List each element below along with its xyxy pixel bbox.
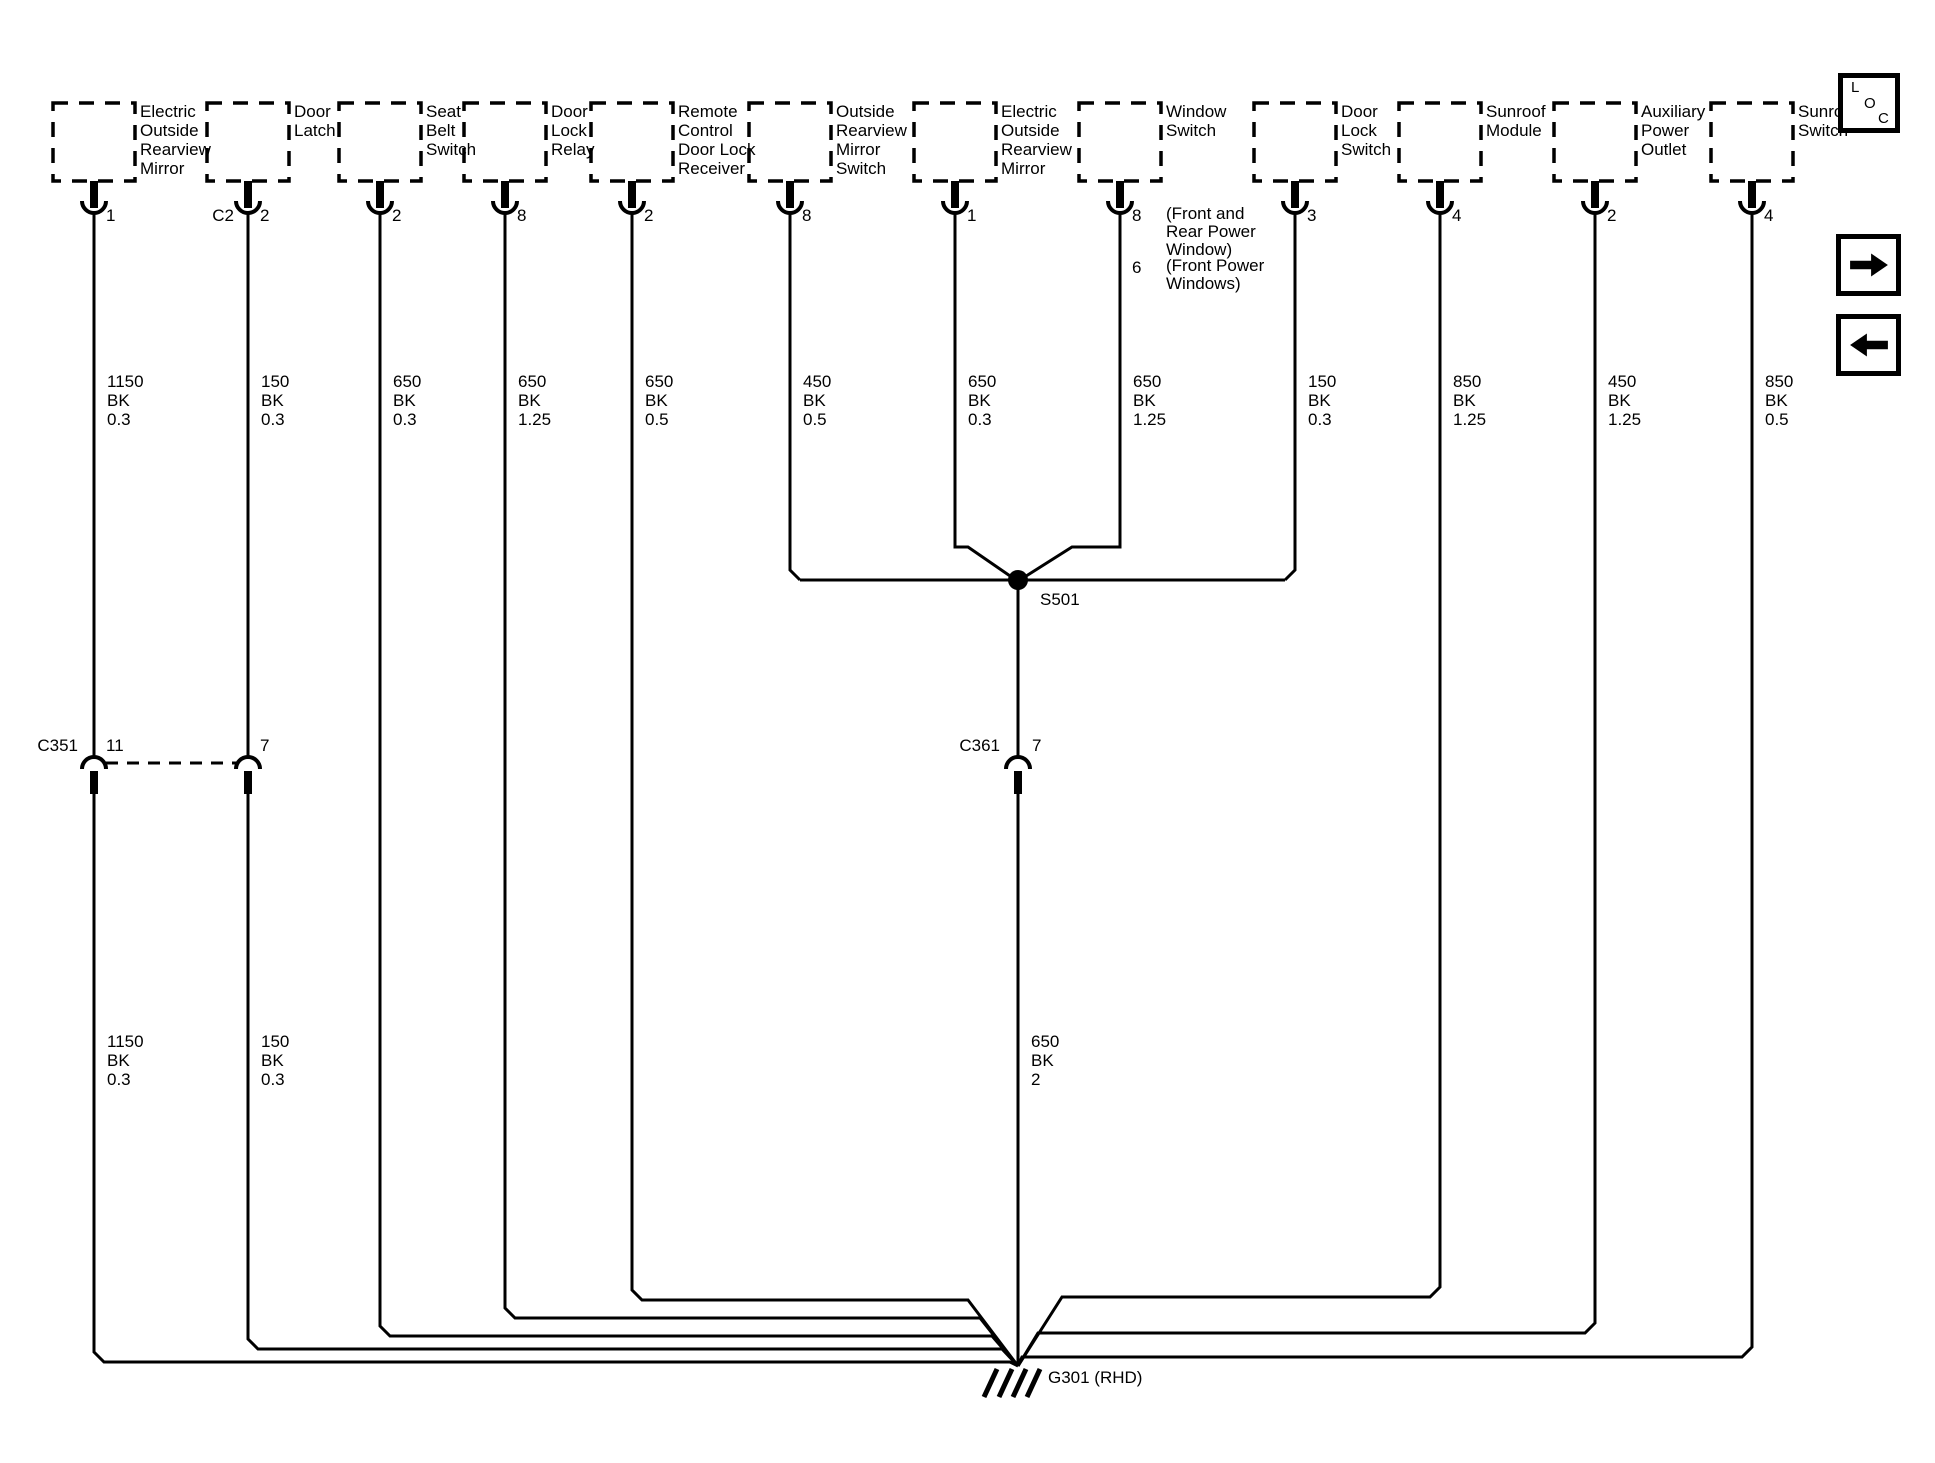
wire-spec-label: 1150 BK 0.3: [107, 372, 144, 429]
wire-spec-label-lower: 150 BK 0.3: [261, 1032, 289, 1089]
pin-number-label: 2: [392, 206, 401, 225]
connector-pin-label: 11: [106, 736, 124, 755]
loc-letter-o: O: [1864, 95, 1876, 112]
pin-number-label: 8: [802, 206, 811, 225]
loc-letter-c: C: [1878, 110, 1889, 127]
wires: [94, 213, 1752, 1366]
pin-number-label: 2: [1607, 206, 1616, 225]
connector-pin-ticks: [94, 181, 1752, 208]
pin-number-label: 8: [1132, 206, 1141, 225]
pin-number-label: 3: [1307, 206, 1316, 225]
loc-reference-button[interactable]: L O C: [1838, 73, 1900, 133]
right-arrow-icon: [1848, 249, 1890, 281]
wire-spec-label: 850 BK 1.25: [1453, 372, 1486, 429]
wire-spec-label: 150 BK 0.3: [261, 372, 289, 429]
splice-label-s501: S501: [1040, 590, 1080, 609]
splice-dot: [1008, 570, 1028, 590]
next-page-button[interactable]: [1836, 234, 1901, 296]
pin-number-label: 4: [1452, 206, 1461, 225]
ground-label-g301: G301 (RHD): [1048, 1368, 1142, 1387]
inline-connector-symbols: [82, 757, 1030, 794]
left-arrow-icon: [1848, 329, 1890, 361]
wire-spec-label: 450 BK 1.25: [1608, 372, 1641, 429]
wire-spec-label: 650 BK 1.25: [518, 372, 551, 429]
previous-page-button[interactable]: [1836, 314, 1901, 376]
wire-spec-label: 150 BK 0.3: [1308, 372, 1336, 429]
wire-spec-label: 650 BK 0.3: [968, 372, 996, 429]
wire-spec-label-lower: 1150 BK 0.3: [107, 1032, 144, 1089]
pin-number-label-alt: 6: [1132, 258, 1141, 277]
component-label-electric-outside-rearview-mirror: Electric Outside Rearview Mirror: [140, 102, 258, 178]
pin-number-label: 2: [260, 206, 269, 225]
wiring-diagram-page: Electric Outside Rearview Mirror Door La…: [0, 0, 1935, 1463]
connector-label-c2: C2: [158, 206, 234, 225]
connector-cup-symbols: [82, 201, 1764, 213]
component-label-electric-outside-rearview-mirror-2: Electric Outside Rearview Mirror: [1001, 102, 1119, 178]
component-label-window-switch: Window Switch: [1166, 102, 1284, 140]
connector-label-c361: C361: [930, 736, 1000, 755]
pin-number-label: 4: [1764, 206, 1773, 225]
component-label-seat-belt-switch: Seat Belt Switch: [426, 102, 544, 159]
pin-number-label: 2: [644, 206, 653, 225]
pin-number-label: 8: [517, 206, 526, 225]
connector-pin-label: 7: [1032, 736, 1041, 755]
component-label-sunroof-module: Sunroof Module: [1486, 102, 1604, 140]
pin-note-front-rear-power-window: (Front and Rear Power Window): [1166, 205, 1308, 259]
loc-letter-l: L: [1851, 79, 1859, 96]
connector-pin-label: 7: [260, 736, 269, 755]
wire-spec-label: 450 BK 0.5: [803, 372, 831, 429]
ground-symbol: [984, 1369, 1040, 1397]
pin-number-label: 1: [967, 206, 976, 225]
component-label-door-lock-relay: Door Lock Relay: [551, 102, 669, 159]
connector-label-c351: C351: [8, 736, 78, 755]
component-label-remote-control-door-lock-receiver: Remote Control Door Lock Receiver: [678, 102, 796, 178]
wire-spec-label: 650 BK 1.25: [1133, 372, 1166, 429]
wire-spec-label-ground-wire: 650 BK 2: [1031, 1032, 1059, 1089]
component-label-auxiliary-power-outlet: Auxiliary Power Outlet: [1641, 102, 1759, 159]
component-label-door-latch: Door Latch: [294, 102, 412, 140]
wire-spec-label: 650 BK 0.3: [393, 372, 421, 429]
pin-number-label: 1: [106, 206, 115, 225]
component-label-outside-rearview-mirror-switch: Outside Rearview Mirror Switch: [836, 102, 954, 178]
pin-note-front-power-windows: (Front Power Windows): [1166, 257, 1308, 293]
wire-spec-label: 650 BK 0.5: [645, 372, 673, 429]
component-label-door-lock-switch: Door Lock Switch: [1341, 102, 1459, 159]
wire-spec-label: 850 BK 0.5: [1765, 372, 1793, 429]
